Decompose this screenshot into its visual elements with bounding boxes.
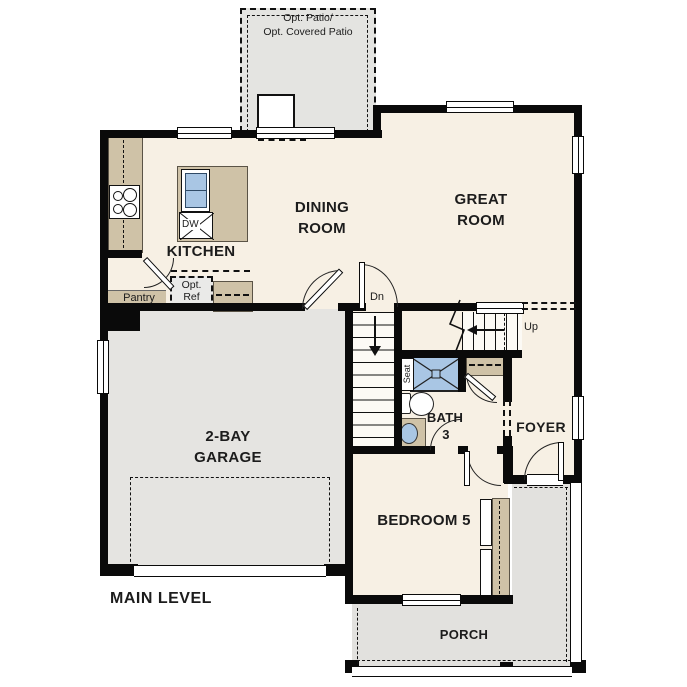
stairs-down-arrowhead [369, 346, 381, 356]
wall [574, 436, 582, 483]
bedroom-window [402, 594, 461, 606]
wall [503, 350, 512, 402]
wall [394, 303, 476, 311]
bath-sink-icon [400, 423, 418, 444]
porch-edge-front [352, 666, 572, 677]
garage-setback-dash [130, 477, 330, 567]
great-room-window-right [572, 136, 584, 174]
closet-shelf [492, 498, 510, 598]
dishwasher-icon: DW [179, 212, 213, 239]
opt-ref-label-2: Ref [172, 291, 211, 303]
floor-plan: DW Opt. Ref Seat [0, 0, 687, 687]
great-room-window-bottom [476, 302, 524, 314]
dishwasher-label: DW [181, 219, 200, 230]
foyer-label: FOYER [516, 419, 566, 435]
bedroom-label: BEDROOM 5 [377, 512, 471, 529]
porch-label: PORCH [440, 627, 488, 642]
wall [345, 446, 435, 454]
cased-opening-dash [503, 400, 505, 436]
cased-opening-dash [509, 400, 511, 436]
stairs-up-arrow [476, 329, 504, 331]
wall [345, 595, 405, 604]
great-room-label-1: GREAT [455, 191, 508, 208]
dining-label-1: DINING [295, 199, 349, 216]
linen-shelf [466, 356, 506, 376]
wall [345, 306, 353, 604]
garage-label-1: 2-BAY [205, 428, 250, 445]
stairs-up-arrowhead [467, 325, 477, 335]
seat-label: Seat [402, 359, 412, 389]
wall [457, 595, 513, 604]
wall [373, 105, 381, 138]
patio-label-1: Opt. Patio/ [283, 12, 333, 24]
wall [100, 564, 138, 576]
garage-door [134, 565, 326, 577]
bath-label-2: 3 [442, 427, 450, 442]
shower-icon [410, 356, 462, 392]
stairs-up-label: Up [524, 321, 538, 333]
stairs-down-arrow [374, 316, 376, 348]
closet-slider-panel-1 [480, 499, 492, 546]
wall [100, 254, 108, 342]
front-door-leaf [558, 442, 564, 481]
wall [100, 130, 382, 138]
dining-label-2: ROOM [298, 220, 346, 237]
wall [574, 170, 582, 398]
garage-label-2: GARAGE [194, 449, 262, 466]
stairs-down-label: Dn [370, 291, 384, 303]
opt-ref-label-1: Opt. [172, 279, 211, 291]
patio-slider-door [256, 127, 335, 139]
porch-dash-left [357, 608, 358, 664]
foyer-window [572, 396, 584, 440]
porch-edge-right [570, 483, 582, 662]
stairs-down-door-leaf [359, 262, 365, 309]
cabinet-dash-line [171, 270, 250, 272]
wall [100, 303, 305, 311]
kitchen-label: KITCHEN [167, 243, 236, 260]
island-sink-icon [181, 169, 210, 212]
shower-seat: Seat [400, 358, 414, 391]
closet-slider-panel-2 [480, 549, 492, 596]
great-room-window-top [446, 101, 514, 113]
wall [100, 390, 108, 576]
wall [574, 105, 582, 138]
great-room-label-2: ROOM [457, 212, 505, 229]
wall [394, 303, 402, 454]
great-room-floor [373, 108, 578, 308]
opening-above-dash [522, 308, 576, 310]
pantry-label: Pantry [123, 292, 155, 304]
garage-window [97, 340, 109, 394]
bedroom-door-leaf [464, 451, 470, 486]
stairs-up-dash [504, 313, 505, 350]
slider-dash [258, 139, 306, 141]
stove-icon [109, 185, 140, 219]
opening-above-dash [522, 302, 576, 304]
kitchen-window [177, 127, 232, 139]
plan-title: MAIN LEVEL [110, 590, 212, 608]
bath-label-1: BATH [427, 410, 463, 425]
patio-label-2: Opt. Covered Patio [263, 26, 352, 38]
wall [100, 130, 108, 254]
porch-dash-right [566, 487, 567, 662]
porch-dash-top [514, 487, 568, 488]
porch-dash-bottom [357, 660, 571, 661]
